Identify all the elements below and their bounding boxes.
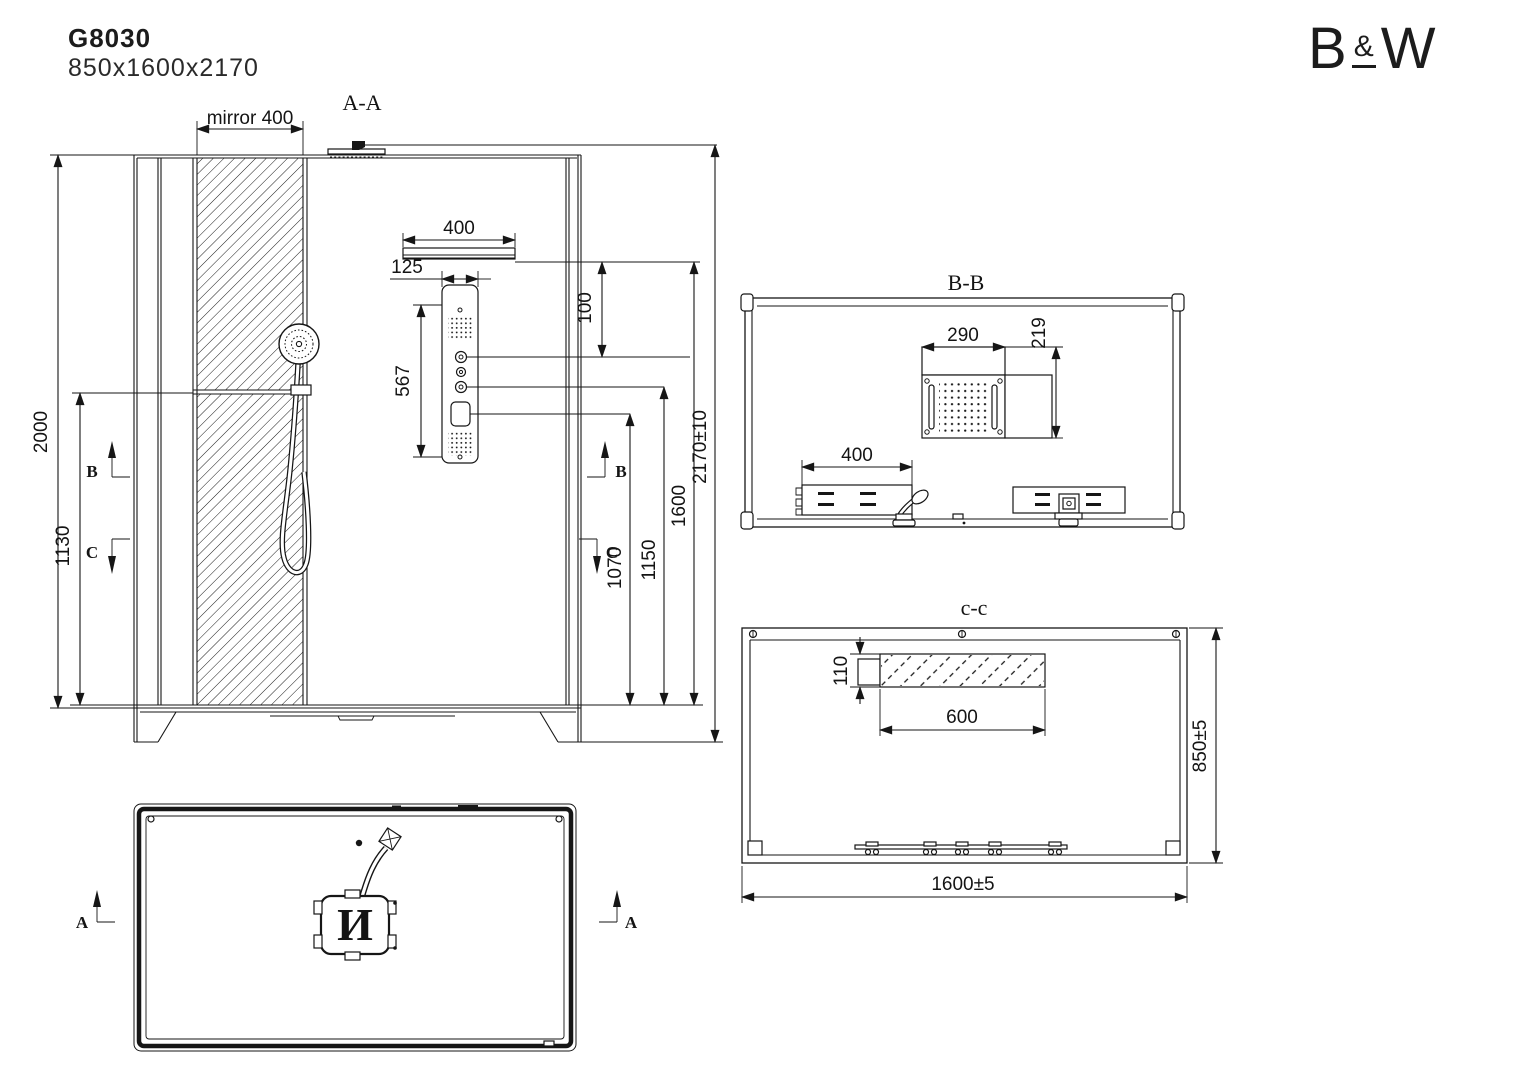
section-label-bb: B-B (948, 270, 985, 295)
speaker-grid-top (448, 316, 472, 339)
section-label-aa: A-A (342, 90, 381, 115)
bb-corner-cap (741, 294, 753, 311)
marker-c-right-label: C (606, 543, 618, 562)
rain-head-perforation (939, 382, 987, 432)
dim-1600-cc: 1600±5 (742, 866, 1187, 903)
dim-290-label: 290 (947, 325, 979, 346)
dim-panel-567: 567 (393, 305, 442, 457)
panel-display (451, 402, 470, 426)
dim-110-label: 110 (831, 656, 852, 686)
dim-850: 850±5 (1189, 628, 1223, 863)
dim-600-label: 600 (946, 707, 978, 728)
dim-panel-125: 125 (390, 257, 491, 287)
cc-glass-shelf (858, 654, 1045, 687)
section-marker-a-left: A (76, 890, 115, 932)
dim-100-label: 100 (575, 292, 596, 324)
drawing-sheet: G8030 850x1600x2170 B & W A- (0, 0, 1536, 1086)
screw-icon (148, 816, 154, 822)
panel-knob-2 (457, 368, 466, 377)
panel-knob-3 (456, 382, 467, 393)
dim-1130: 1130 (53, 393, 80, 705)
dim-1130-label: 1130 (53, 526, 74, 567)
cc-corner-bracket (1166, 841, 1180, 855)
dim-1600-cc-label: 1600±5 (931, 874, 994, 895)
marker-b-right-label: B (615, 462, 626, 481)
control-panel (442, 285, 478, 463)
cc-corner-bracket (748, 841, 762, 855)
section-cc-view: c-c (742, 595, 1223, 903)
section-marker-b-right: B (587, 441, 627, 481)
dim-400-bb-label: 400 (841, 445, 873, 466)
marker-b-left-label: B (86, 462, 97, 481)
dim-567-label: 567 (393, 365, 414, 397)
dim-2170-label: 2170±10 (690, 410, 711, 484)
dim-mirror-label: mirror 400 (207, 108, 294, 129)
section-marker-b-left: B (86, 441, 130, 481)
section-label-cc: c-c (961, 595, 988, 620)
speaker-grid-bottom (448, 431, 472, 456)
dim-bar-label: 400 (443, 218, 475, 239)
dim-2000-label: 2000 (31, 411, 52, 453)
technical-drawing: A-A (0, 0, 1536, 1086)
bb-panel-box (796, 485, 912, 515)
dim-125-label: 125 (391, 257, 423, 278)
mirror-panel (193, 158, 307, 705)
dim-mirror-400: mirror 400 (197, 108, 303, 155)
bb-corner-cap (741, 512, 753, 529)
section-marker-c-left: C (86, 539, 130, 574)
dim-1150-label: 1150 (639, 540, 660, 581)
front-leader-lines (50, 145, 723, 742)
section-marker-a-right: A (599, 890, 638, 932)
plan-bottom-fitting (544, 1041, 554, 1046)
marker-a-left-label: A (76, 913, 89, 932)
drain-label: И (337, 899, 373, 950)
dim-2000: 2000 (31, 155, 58, 708)
front-view: A-A (31, 90, 723, 742)
plan-view: И A A (76, 804, 638, 1051)
dim-100: 100 (575, 262, 602, 357)
front-base-legs (134, 712, 581, 742)
dim-1150: 1150 (639, 387, 664, 705)
bb-bottom-fitting (953, 514, 963, 519)
panel-knob-1 (456, 352, 467, 363)
section-bb-view: B-B (741, 270, 1184, 529)
marker-a-right-label: A (625, 913, 638, 932)
bb-corner-cap (1172, 294, 1184, 311)
dim-850-label: 850±5 (1190, 720, 1211, 773)
dim-bar-400: 400 (403, 218, 515, 247)
bb-corner-cap (1172, 512, 1184, 529)
dim-1600-label: 1600 (669, 485, 690, 527)
screw-icon (556, 816, 562, 822)
marker-c-left-label: C (86, 543, 98, 562)
dim-219-label: 219 (1029, 317, 1050, 349)
